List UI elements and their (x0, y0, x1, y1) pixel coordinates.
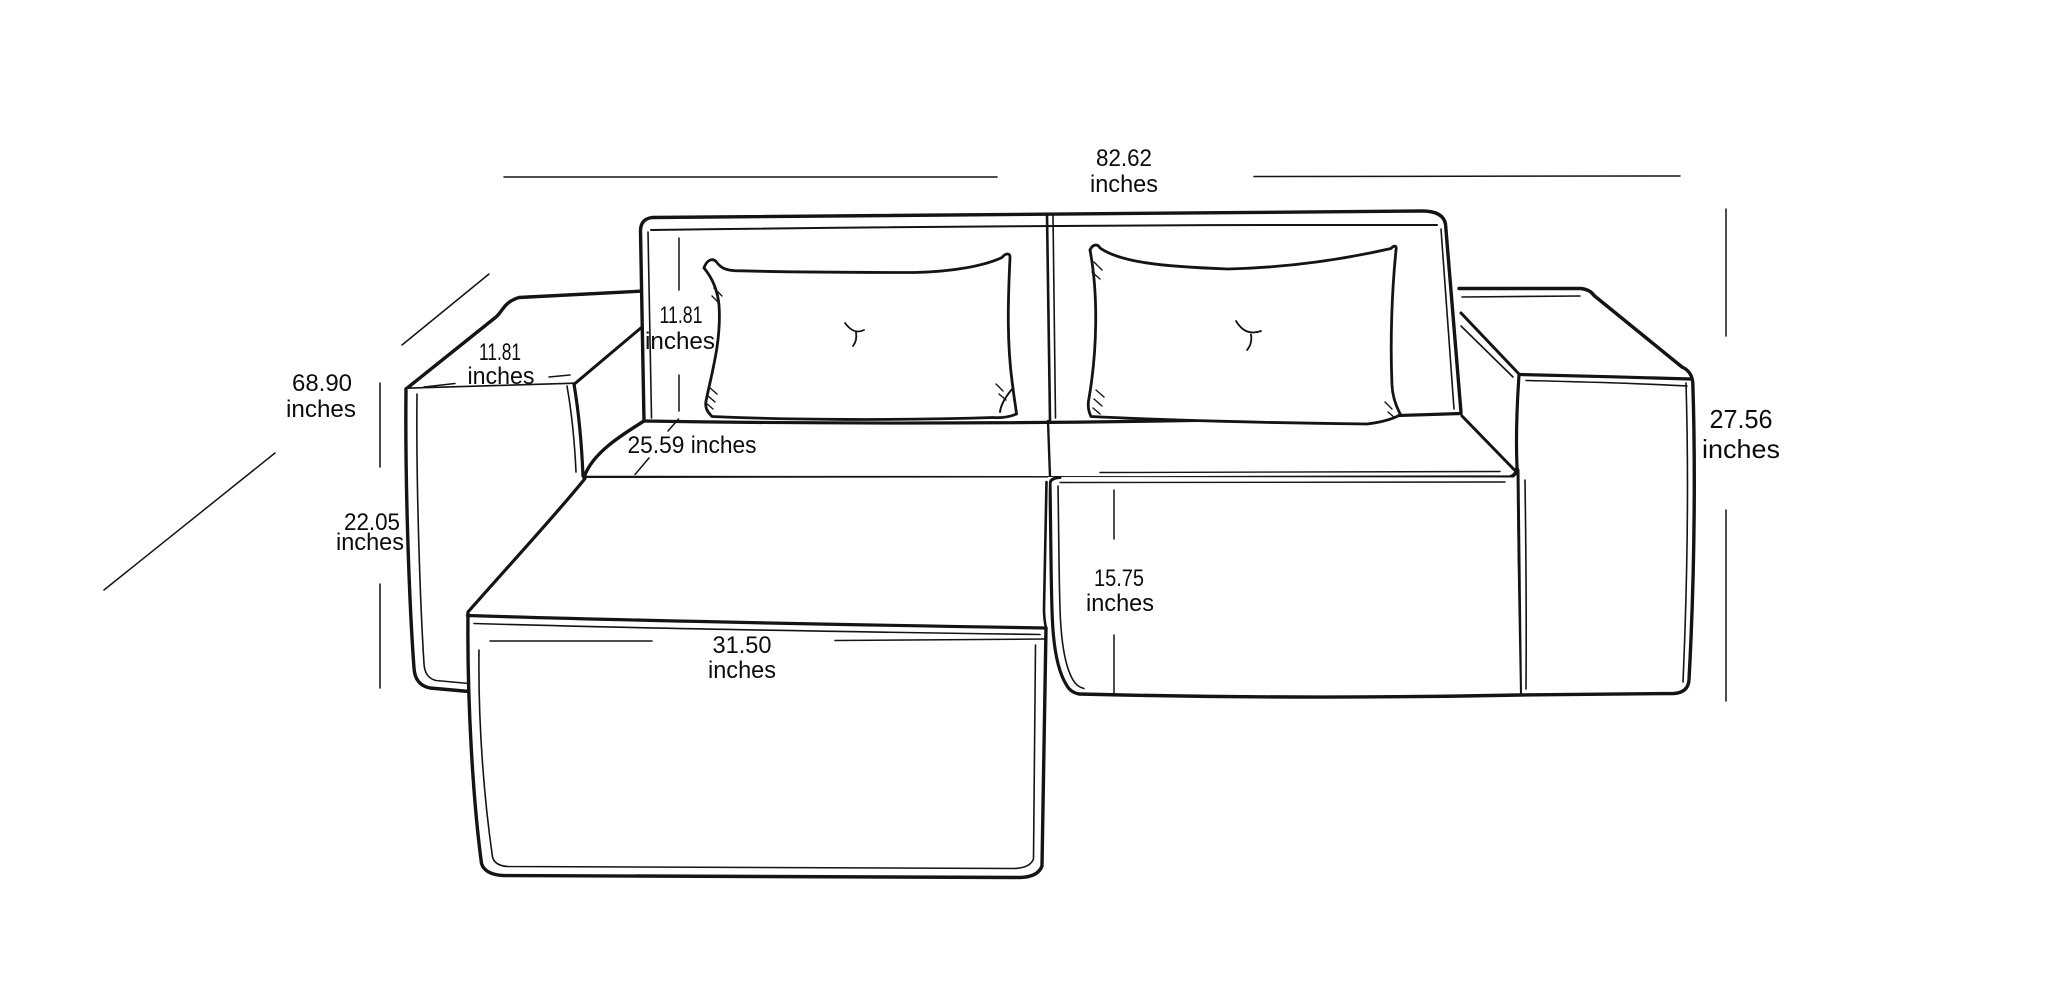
svg-text:inches: inches (286, 396, 356, 423)
svg-text:inches: inches (1086, 590, 1154, 617)
svg-text:11.81: 11.81 (660, 302, 703, 329)
svg-text:inches: inches (1090, 171, 1158, 198)
svg-text:inches: inches (468, 363, 535, 390)
svg-text:11.81: 11.81 (479, 339, 521, 366)
svg-text:inches: inches (708, 657, 776, 684)
svg-text:82.62: 82.62 (1096, 145, 1152, 172)
svg-text:31.50: 31.50 (713, 632, 772, 659)
svg-text:inches: inches (1702, 434, 1780, 464)
svg-text:27.56: 27.56 (1710, 404, 1773, 434)
svg-text:15.75: 15.75 (1094, 565, 1144, 592)
svg-text:inches: inches (645, 328, 715, 355)
svg-text:25.59 inches: 25.59 inches (628, 432, 757, 459)
svg-text:68.90: 68.90 (292, 370, 352, 397)
svg-text:inches: inches (336, 529, 404, 556)
